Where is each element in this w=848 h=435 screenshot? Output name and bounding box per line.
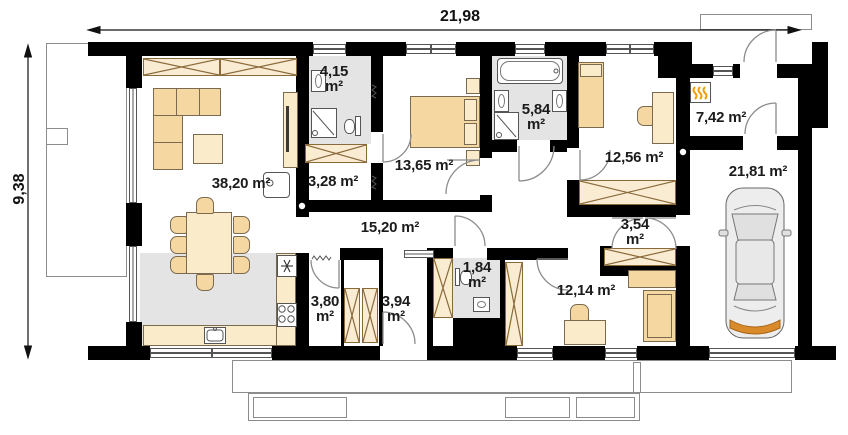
room-area-label: 3,28 m²: [300, 174, 366, 189]
chair: [637, 106, 653, 126]
nightstand: [466, 150, 480, 166]
wall-segment: [690, 64, 713, 78]
wall-segment: [453, 318, 500, 346]
wall-segment: [88, 346, 150, 360]
area-value: 3,80: [303, 294, 347, 309]
area-value: 5,84: [514, 102, 558, 117]
wall-segment: [88, 42, 313, 56]
wardrobe: [579, 180, 676, 205]
chair: [233, 256, 250, 274]
wall-segment: [340, 248, 383, 260]
wall-segment: [272, 346, 380, 360]
sink: [494, 90, 509, 112]
room-area-label: 13,65 m²: [388, 158, 460, 173]
chair: [170, 236, 187, 254]
wall-segment: [480, 56, 492, 158]
garage-door: [709, 348, 795, 358]
wall-segment: [427, 346, 517, 360]
room-area-label: 1,84 m²: [456, 260, 498, 290]
wall-segment: [545, 42, 606, 56]
room-area-label: 7,42 m²: [690, 110, 752, 125]
wall-segment: [777, 136, 798, 150]
room-area-label: 15,20 m²: [352, 220, 428, 235]
door-arc: [519, 146, 554, 181]
wall-segment: [492, 140, 517, 152]
chair: [233, 216, 250, 234]
wall-segment: [795, 346, 836, 360]
sofa-cushion-line: [154, 142, 182, 143]
wardrobe: [433, 258, 453, 318]
wall-segment: [777, 64, 798, 78]
area-unit: m²: [372, 309, 420, 324]
door-arc: [744, 30, 776, 62]
dimension-left-label: 9,38: [11, 169, 29, 209]
back-terrace: [232, 360, 792, 393]
interior-transom: [404, 250, 434, 258]
window: [517, 348, 553, 358]
room-area-label: 12,56 m²: [598, 150, 670, 165]
area-value: 4,15: [312, 64, 356, 79]
window: [605, 348, 637, 358]
area-unit: m²: [514, 117, 558, 132]
room-area-label: 3,80 m²: [303, 294, 347, 324]
window: [713, 66, 733, 76]
window-west: [129, 246, 137, 322]
window: [630, 44, 654, 54]
terrace-detail: [633, 362, 641, 393]
wall-segment: [126, 56, 142, 88]
window: [606, 44, 630, 54]
wall-segment: [456, 42, 515, 56]
toilet-bowl: [344, 119, 355, 134]
entry-porch: [700, 14, 812, 30]
wall-segment: [296, 200, 492, 212]
window: [515, 44, 545, 54]
terrace-step-pad: [505, 397, 570, 418]
wall-segment: [346, 42, 406, 56]
wall-segment: [676, 56, 690, 215]
tv: [286, 106, 289, 152]
ottoman: [193, 134, 223, 164]
room-area-label: 4,15 m²: [312, 64, 356, 94]
wall-segment: [637, 346, 709, 360]
area-unit: m²: [303, 309, 347, 324]
wall-segment: [371, 56, 383, 132]
stove: [277, 303, 297, 327]
wall-segment: [371, 163, 383, 212]
terrace-step-pad: [253, 397, 347, 418]
window: [406, 44, 431, 54]
desk: [652, 92, 674, 144]
heater-icon: [690, 82, 711, 103]
chair: [170, 216, 187, 234]
wall-segment: [553, 346, 605, 360]
side-terrace: [46, 43, 127, 277]
wall-segment: [798, 64, 812, 360]
terrace-step-pad: [576, 397, 635, 418]
wall-segment: [126, 322, 142, 346]
window: [313, 44, 346, 54]
bathtub-inner: [500, 61, 560, 81]
window: [212, 348, 272, 358]
dimension-line-top: [88, 27, 800, 34]
chair: [570, 304, 589, 321]
wall-segment: [812, 42, 828, 128]
chair: [233, 236, 250, 254]
area-value: 1,84: [456, 260, 498, 275]
tall-wardrobe-inner: [647, 294, 672, 338]
wall-segment: [733, 64, 740, 78]
wall-segment: [480, 195, 492, 212]
toilet-tank: [355, 116, 361, 136]
area-unit: m²: [312, 79, 356, 94]
wall-segment: [676, 246, 690, 346]
nightstand: [466, 78, 480, 94]
door-arc: [455, 216, 485, 246]
area-value: 3,54: [612, 217, 658, 232]
wardrobe: [604, 248, 676, 266]
area-value: 3,94: [372, 294, 420, 309]
dimension-top-label: 21,98: [420, 8, 500, 26]
pillow: [580, 64, 602, 77]
window-west: [129, 88, 137, 203]
room-area-label: 3,54 m²: [612, 217, 658, 247]
wardrobe: [305, 144, 367, 163]
dresser: [628, 270, 676, 288]
desk: [564, 320, 606, 345]
window: [150, 348, 212, 358]
wall-segment: [690, 136, 743, 150]
wardrobe: [143, 58, 220, 76]
room-area-label: 5,84 m²: [514, 102, 558, 132]
car: [719, 188, 791, 338]
chair: [196, 197, 214, 214]
chair: [196, 274, 214, 291]
wardrobe: [220, 58, 297, 76]
room-area-label: 3,94 m²: [372, 294, 420, 324]
chair: [170, 256, 187, 274]
wall-segment: [550, 140, 567, 152]
wardrobe: [505, 262, 523, 346]
room-area-label: 12,14 m²: [548, 283, 624, 298]
window: [431, 44, 456, 54]
pillow: [464, 99, 477, 121]
area-unit: m²: [612, 232, 658, 247]
room-area-label: 38,20 m²: [196, 176, 286, 191]
sofa: [153, 88, 221, 116]
kitchen-sink: [204, 327, 226, 344]
side-terrace-step: [46, 128, 68, 145]
pillow: [464, 123, 477, 145]
sink: [473, 297, 490, 312]
fridge: [277, 255, 297, 277]
wall-segment: [510, 248, 568, 260]
sofa-cushion-line: [199, 89, 200, 115]
area-unit: m²: [456, 275, 498, 290]
wall-segment: [126, 203, 142, 246]
dining-table: [186, 212, 232, 274]
room-area-label: 21,81 m²: [722, 164, 794, 179]
floor-plan: 21,98 9,38 38,20 m² 4,15 m² 3,28 m² 13,6…: [0, 0, 848, 435]
door-arc: [311, 260, 339, 288]
sofa-cushion-line: [176, 89, 177, 115]
shower: [311, 108, 337, 138]
